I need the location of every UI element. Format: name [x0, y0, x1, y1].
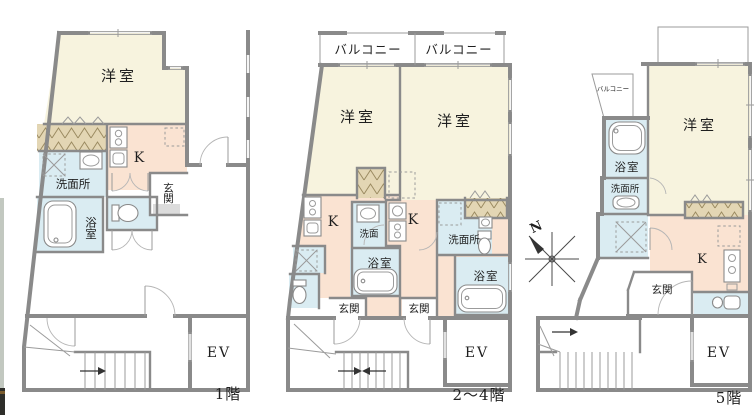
compass-north-label: N [528, 218, 545, 237]
entrance-left-label: 玄関 [339, 302, 360, 315]
bathroom-right-label: 浴室 [474, 269, 499, 283]
floor5-title: 5階 [716, 389, 743, 407]
western-room-label: 洋室 [683, 117, 717, 134]
washroom-label: 洗面所 [611, 183, 640, 195]
stairs [24, 325, 145, 390]
entrance-right-label: 玄関 [409, 302, 430, 315]
balcony-right-label: バルコニー [425, 42, 492, 57]
entrance-label: 玄関 [162, 182, 174, 205]
floorplan-5f: バルコニー 洋室 浴室 洗面所 K 玄関 EV 5階 [538, 27, 754, 407]
toilet-icon [713, 296, 741, 309]
toilet-icon [112, 205, 138, 222]
bathtub-right-icon [458, 285, 506, 312]
stairs [538, 326, 632, 390]
western-room-right-area [400, 65, 510, 200]
elevator-label: EV [707, 345, 731, 361]
closet-left-hatch [357, 168, 385, 198]
toilet-right-icon [478, 231, 491, 254]
vanity-right-icon [479, 217, 492, 228]
kitchen-label: K [697, 252, 707, 267]
bathtub-icon [44, 201, 76, 247]
western-room-label: 洋室 [101, 67, 137, 85]
stove-left-icon [304, 197, 321, 218]
kitchen-label: K [134, 150, 145, 166]
bathroom-left-label: 浴室 [368, 256, 393, 270]
western-room-right-label: 洋室 [437, 112, 473, 130]
kitchen-sink-icon [110, 150, 127, 167]
western-room-area [648, 64, 750, 215]
floorplan-2-4f: バルコニー バルコニー 洋室 洋室 K K 洗面 浴室 洗面所 浴室 玄関 玄関… [288, 33, 511, 404]
boundary-windows [247, 55, 250, 158]
balcony-label: バルコニー [597, 85, 629, 93]
western-room-left-label: 洋室 [340, 108, 376, 126]
closet-hatch [685, 202, 743, 218]
compass-north-pointer [529, 236, 544, 254]
toilet-left-icon [293, 280, 306, 304]
floor2-4-title: 2〜4階 [452, 386, 505, 404]
floorplan-image: 洋室 K 洗面所 浴室 玄関 EV 1階 [0, 0, 755, 415]
kitchen-sink-right-icon [389, 203, 406, 219]
elevator-label: EV [465, 345, 489, 361]
stove-right-icon [389, 221, 406, 241]
washbasin-sink-icon [357, 205, 379, 222]
bathroom-label: 浴室 [84, 217, 98, 240]
kitchen-sink-left-icon [304, 220, 321, 236]
vanity-sink-icon [613, 196, 639, 209]
bathroom-label: 浴室 [615, 160, 640, 174]
floorplan-svg: 洋室 K 洗面所 浴室 玄関 EV 1階 [0, 0, 755, 415]
roof-balcony-area [658, 27, 748, 64]
bathtub-icon [609, 122, 645, 154]
floor1-title: 1階 [215, 385, 242, 403]
stairs [288, 324, 400, 390]
washroom-right-label: 洗面所 [448, 234, 480, 246]
balcony-area [592, 74, 633, 118]
entrance-label: 玄関 [652, 283, 673, 296]
washbasin-label: 洗面 [359, 228, 378, 240]
balcony-left-label: バルコニー [334, 42, 401, 57]
compass: N [525, 218, 579, 286]
elevator-label: EV [207, 345, 231, 361]
vanity-sink-icon [80, 152, 102, 169]
kitchen-right-label: K [408, 212, 419, 228]
laundry-area [598, 214, 648, 258]
floorplan-1f: 洋室 K 洗面所 浴室 玄関 EV 1階 [24, 29, 249, 403]
washroom-label: 洗面所 [56, 177, 91, 191]
stove-icon [110, 127, 127, 148]
kitchen-left-label: K [328, 214, 339, 230]
bathtub-left-icon [354, 269, 397, 294]
